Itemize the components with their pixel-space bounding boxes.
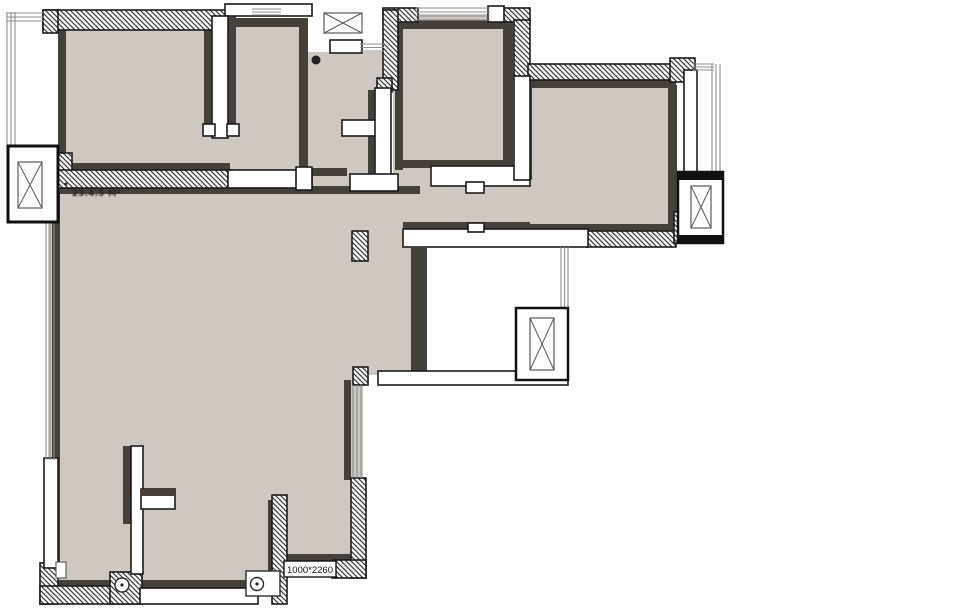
top-center-shaft-cross-icon xyxy=(324,13,362,33)
door-pivot-dot-icon xyxy=(312,56,321,65)
wall-step xyxy=(43,10,58,33)
wall-room-divider xyxy=(212,16,228,138)
wall-right-edge xyxy=(684,70,697,178)
trim xyxy=(668,85,677,233)
wall-left-lower xyxy=(44,458,58,568)
door-notch xyxy=(468,223,484,232)
wall-bottom-white xyxy=(140,588,258,604)
wall-balcony-bottom xyxy=(332,560,366,578)
wall-t-foot xyxy=(350,174,398,191)
right-elevator-top-bar xyxy=(678,172,723,180)
wall-divider-cap-right xyxy=(227,124,239,136)
wall-right-room-bottom xyxy=(586,231,676,247)
floor-plan-drawing: 1000*2260 23.4.5 M² xyxy=(0,0,957,613)
wall-pier xyxy=(488,6,504,22)
wall-shaft-dark xyxy=(411,247,427,373)
wall-divider-cap-left xyxy=(203,124,215,136)
wall-topleft-bottom xyxy=(45,170,232,188)
small-dot xyxy=(60,584,63,587)
small-dot xyxy=(65,183,68,186)
wall-balcony-top-stub xyxy=(353,367,368,385)
wall-center-stub xyxy=(352,231,368,261)
wall-between-rooms xyxy=(514,76,530,180)
floor-plan-page: 1000*2260 23.4.5 M² xyxy=(0,0,957,613)
stamp-label: 23.4.5 M² xyxy=(72,189,121,199)
left-elevator-cross-icon xyxy=(18,162,42,208)
drain-dot xyxy=(255,582,258,585)
center-elevator-cross-icon xyxy=(530,318,554,370)
wall-right-room-top xyxy=(528,64,675,80)
trim xyxy=(299,18,308,170)
door-notch xyxy=(466,182,484,193)
trim xyxy=(528,80,676,88)
wall-shaft-bottom xyxy=(330,40,362,53)
wall-end-cap xyxy=(296,167,312,190)
floor-right-room xyxy=(524,78,676,236)
wall-top-left-top xyxy=(43,10,228,30)
wall-kitchen-vertical xyxy=(131,446,143,574)
trim-kitchen-stub xyxy=(141,489,175,496)
wall-lintel-top xyxy=(225,4,312,16)
wall-t-vertical xyxy=(375,88,391,180)
pipe-rect-icon xyxy=(56,562,66,578)
floor-top-left-rooms xyxy=(58,18,308,186)
drain-dot-small xyxy=(120,583,123,586)
trim xyxy=(344,380,351,480)
right-elevator-cross-icon xyxy=(691,186,711,228)
trim xyxy=(503,20,513,172)
wall-corridor-bottom xyxy=(403,229,588,247)
door-dimension-label: 1000*2260 xyxy=(287,565,333,576)
right-elevator-bottom-bar xyxy=(678,235,723,243)
